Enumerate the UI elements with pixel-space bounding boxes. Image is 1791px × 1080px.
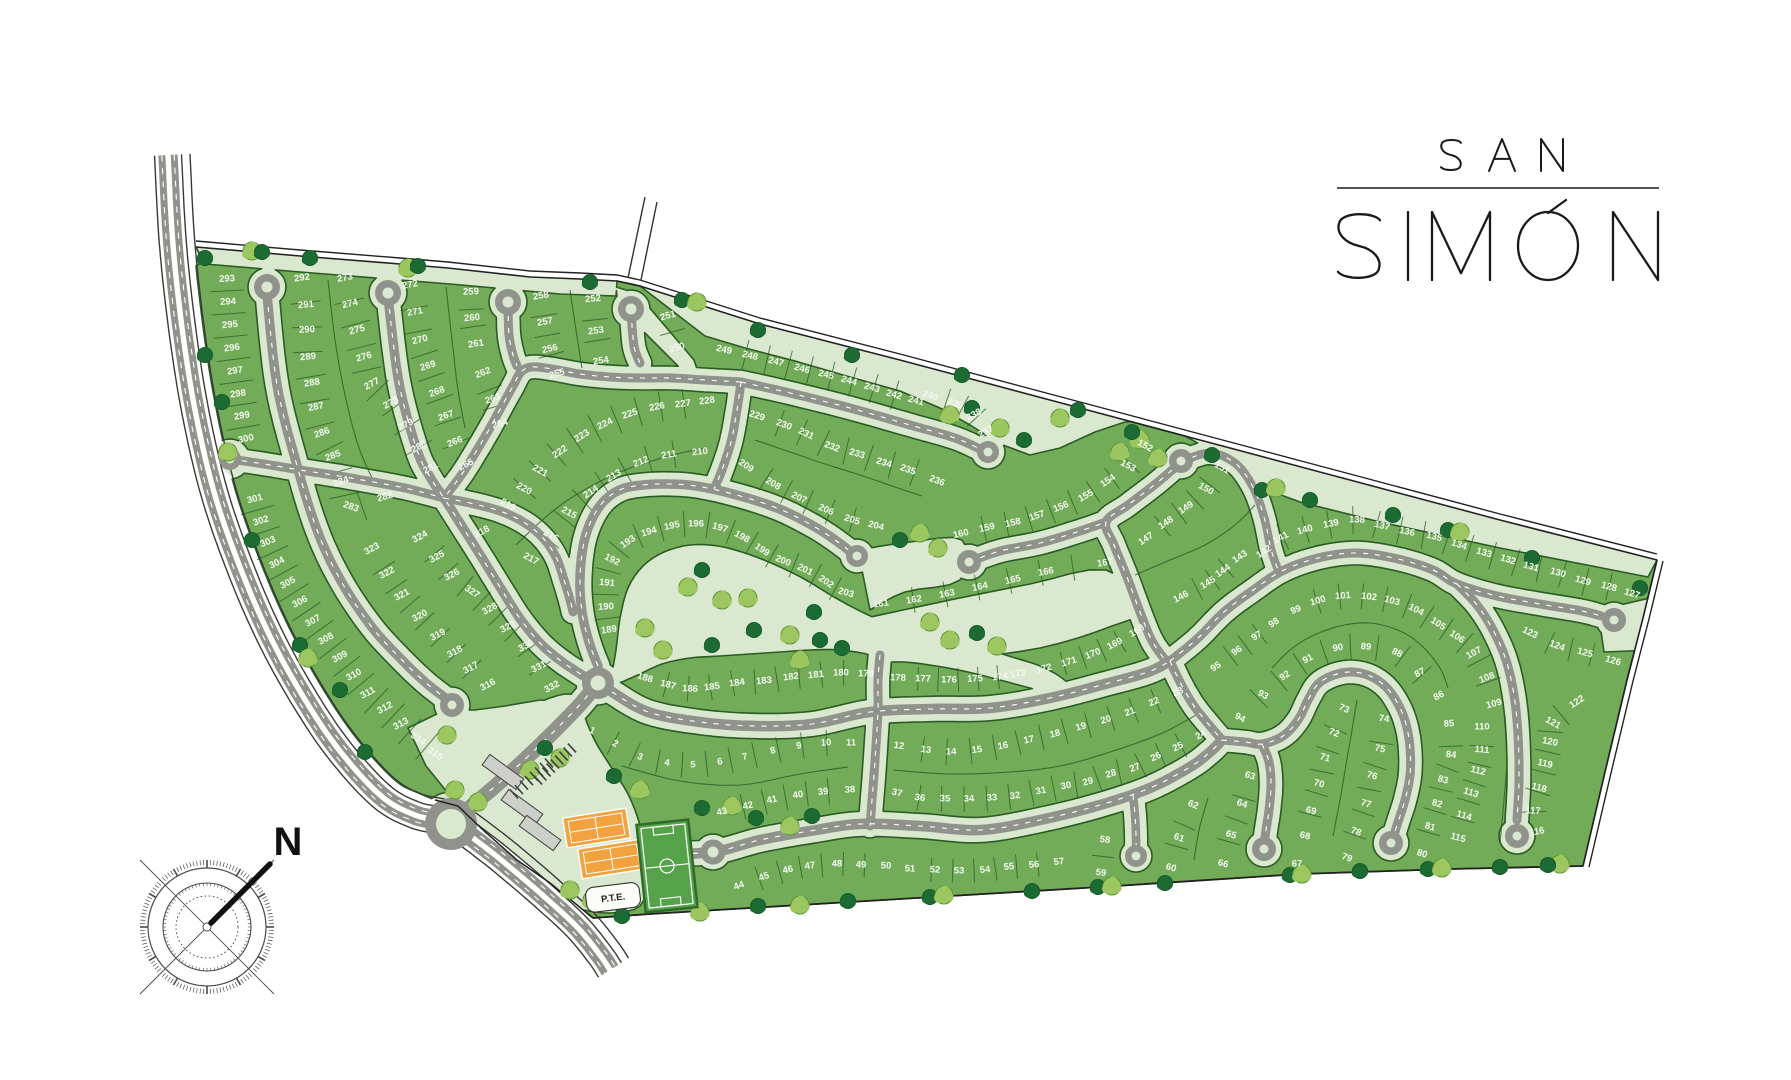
svg-text:227: 227 [674, 398, 691, 411]
svg-text:190: 190 [598, 601, 614, 613]
svg-text:228: 228 [698, 395, 715, 408]
svg-text:175: 175 [967, 673, 984, 685]
svg-text:56: 56 [1028, 859, 1040, 871]
svg-text:40: 40 [792, 789, 804, 802]
svg-text:36: 36 [914, 792, 926, 804]
svg-text:292: 292 [293, 271, 310, 284]
svg-text:54: 54 [979, 864, 991, 876]
svg-text:48: 48 [832, 858, 843, 869]
svg-text:14: 14 [946, 747, 957, 758]
svg-text:260: 260 [464, 312, 481, 324]
svg-text:30: 30 [1060, 780, 1072, 793]
svg-text:196: 196 [688, 518, 704, 529]
svg-text:101: 101 [1335, 590, 1352, 602]
svg-text:294: 294 [220, 296, 237, 308]
svg-text:253: 253 [587, 325, 604, 338]
svg-text:182: 182 [782, 671, 799, 684]
svg-text:291: 291 [298, 299, 315, 311]
svg-text:84: 84 [1445, 749, 1457, 761]
svg-text:191: 191 [599, 577, 616, 589]
svg-text:15: 15 [971, 744, 984, 756]
svg-text:67: 67 [1292, 859, 1303, 870]
svg-text:38: 38 [844, 784, 855, 796]
svg-text:33: 33 [986, 792, 997, 804]
svg-text:177: 177 [915, 673, 931, 685]
svg-text:58: 58 [1099, 834, 1111, 846]
svg-text:55: 55 [1003, 861, 1015, 873]
svg-text:85: 85 [1443, 718, 1455, 730]
svg-text:185: 185 [703, 681, 721, 694]
svg-text:102: 102 [1361, 591, 1378, 604]
svg-text:12: 12 [893, 740, 905, 752]
svg-text:297: 297 [226, 364, 243, 377]
svg-text:298: 298 [229, 387, 246, 400]
svg-text:16: 16 [997, 740, 1009, 753]
svg-text:52: 52 [930, 864, 941, 875]
svg-text:295: 295 [222, 319, 239, 331]
svg-text:53: 53 [954, 866, 965, 877]
svg-text:117: 117 [1525, 805, 1541, 817]
svg-text:59: 59 [1095, 867, 1107, 879]
svg-text:13: 13 [920, 744, 932, 756]
svg-text:138: 138 [1349, 514, 1365, 526]
svg-text:89: 89 [1360, 641, 1371, 653]
svg-text:51: 51 [905, 863, 917, 874]
svg-text:289: 289 [300, 351, 317, 363]
svg-text:290: 290 [299, 324, 315, 336]
svg-text:293: 293 [219, 273, 235, 285]
svg-text:N: N [274, 820, 303, 864]
svg-text:5: 5 [690, 759, 696, 770]
svg-text:10: 10 [820, 737, 831, 749]
svg-text:181: 181 [808, 669, 825, 681]
svg-text:57: 57 [1053, 856, 1065, 868]
svg-text:90: 90 [1332, 642, 1345, 655]
svg-text:49: 49 [856, 859, 867, 870]
svg-text:35: 35 [940, 793, 951, 804]
svg-text:183: 183 [756, 675, 773, 688]
svg-text:296: 296 [223, 342, 240, 355]
svg-text:11: 11 [846, 738, 857, 749]
svg-text:180: 180 [833, 667, 849, 678]
svg-text:210: 210 [692, 446, 709, 459]
svg-text:32: 32 [1009, 790, 1021, 802]
svg-text:174: 174 [991, 671, 1009, 684]
svg-text:176: 176 [941, 675, 957, 686]
svg-text:186: 186 [682, 683, 698, 695]
svg-text:50: 50 [881, 860, 892, 871]
svg-text:39: 39 [817, 786, 828, 798]
svg-text:184: 184 [728, 677, 746, 690]
svg-text:259: 259 [463, 286, 479, 298]
svg-text:179: 179 [858, 668, 874, 680]
svg-text:178: 178 [890, 672, 906, 684]
svg-text:37: 37 [891, 787, 904, 800]
svg-text:34: 34 [964, 793, 975, 804]
svg-text:252: 252 [585, 293, 602, 305]
svg-text:111: 111 [1474, 744, 1490, 756]
svg-text:161: 161 [872, 598, 890, 611]
svg-text:47: 47 [804, 860, 816, 872]
svg-text:110: 110 [1474, 722, 1489, 733]
